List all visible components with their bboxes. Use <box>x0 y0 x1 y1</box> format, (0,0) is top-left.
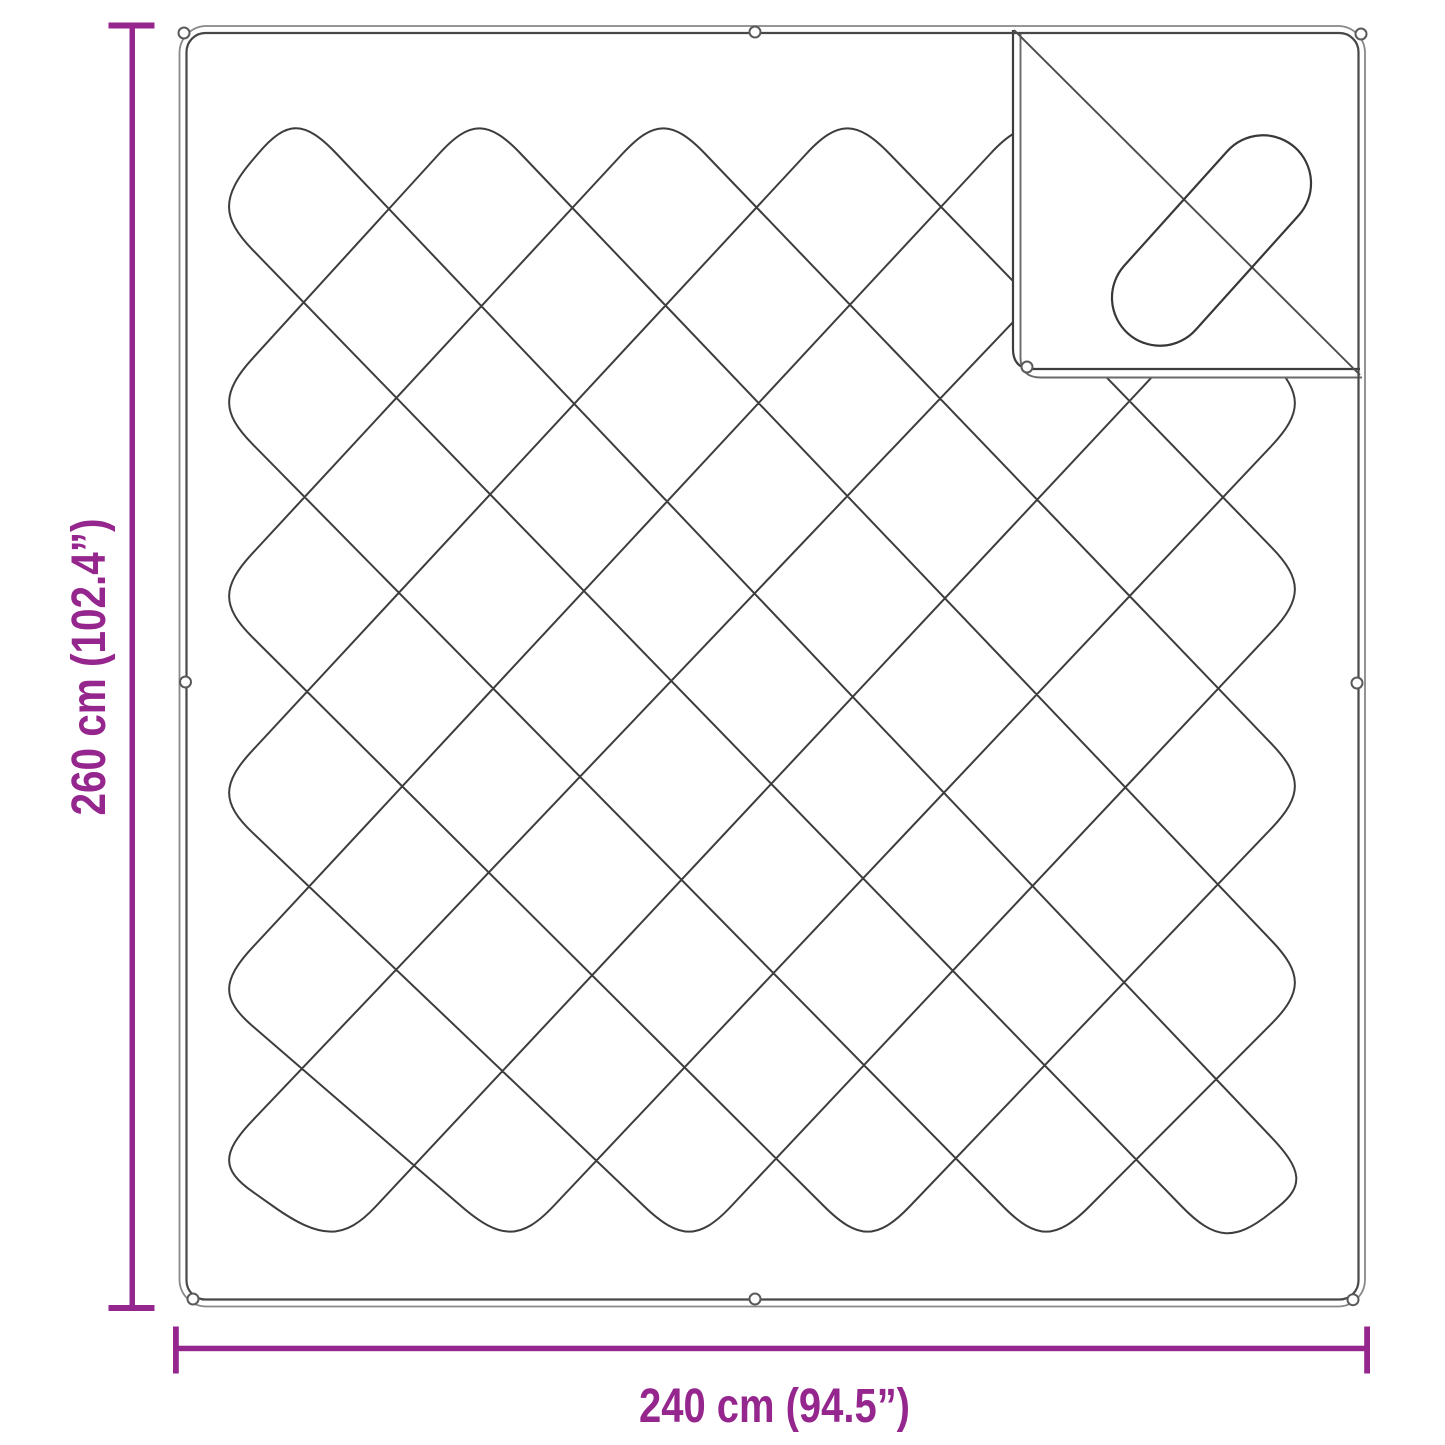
svg-text:240 cm (94.5”): 240 cm (94.5”) <box>639 1380 910 1433</box>
svg-text:260 cm (102.4”): 260 cm (102.4”) <box>63 519 116 816</box>
